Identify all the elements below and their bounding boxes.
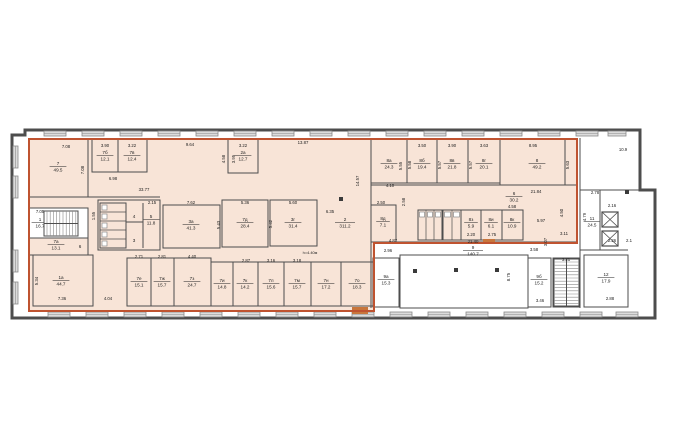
room-area: 19.4 — [418, 165, 427, 170]
wc-fixture — [102, 214, 107, 219]
column — [495, 268, 499, 272]
wc-fixture — [454, 212, 460, 217]
room-number: 7 — [57, 161, 60, 166]
dim-label: 5.36 — [241, 200, 250, 205]
room-area: 24.3 — [385, 165, 394, 170]
column — [413, 269, 417, 273]
dim-label: 5.43 — [216, 220, 221, 229]
dim-label: 2.58 — [401, 197, 406, 206]
dim-label: 4.04 — [104, 296, 113, 301]
dim-label: 2.96 — [384, 248, 393, 253]
dim-label: 6.98 — [109, 176, 118, 181]
room-area: 31.4 — [289, 224, 298, 229]
room-area: 15.7 — [158, 283, 167, 288]
dim-label: 7.62 — [187, 200, 196, 205]
dim-label: 5.55 — [398, 161, 403, 170]
room-area: 14.2 — [241, 285, 250, 290]
room-area: 15.1 — [135, 283, 144, 288]
dim-label: 1.55 — [91, 211, 96, 220]
room-number: 7м — [294, 278, 300, 283]
room-area: 311.2 — [339, 224, 351, 229]
room-number: 1а — [58, 275, 64, 280]
room-number: 7б — [102, 150, 108, 155]
room-number: 8б — [419, 158, 425, 163]
dim-label: 8.75 — [506, 272, 511, 281]
dim-label: 2.75 — [488, 232, 497, 237]
dim-label: 3.22 — [128, 143, 137, 148]
room-area: 14.8 — [218, 285, 227, 290]
dim-label: 2.15 — [148, 200, 157, 205]
room-number: 7в — [130, 150, 136, 155]
room-area: 15.3 — [382, 281, 391, 286]
dim-label: 4.58 — [221, 154, 226, 163]
room-number: 9а — [383, 274, 389, 279]
dim-label: 2.26 — [608, 238, 617, 243]
room-number: 7ж — [159, 276, 166, 281]
wc-fixture — [102, 241, 107, 246]
dim-label: 10.9 — [619, 147, 628, 152]
dim-label: 9.64 — [186, 142, 195, 147]
room-area: 11.8 — [147, 221, 156, 226]
room-number: 7о — [354, 278, 360, 283]
dim-label: 3.50 — [418, 143, 427, 148]
room-number: 7е — [136, 276, 142, 281]
dim-label: 21.40 — [468, 239, 479, 244]
room-note: h=4.40м — [303, 250, 318, 255]
dim-label: 21.84 — [531, 189, 542, 194]
dim-label: 3.95 — [231, 154, 236, 163]
wc-fixture — [420, 212, 425, 217]
dim-label: 3.11 — [560, 231, 569, 236]
room-number: 1 — [39, 217, 42, 222]
room-area: 6.1 — [488, 224, 495, 229]
dim-label: 7.05 — [36, 209, 45, 214]
dim-label: 2.87 — [242, 258, 251, 263]
room-note: 6 — [79, 244, 82, 249]
dim-label: 2.20 — [467, 232, 476, 237]
dim-label: 2.81 — [158, 254, 167, 259]
room-number: 7и — [219, 278, 225, 283]
room-area: 30.2 — [510, 198, 519, 203]
dim-label: 33.77 — [139, 187, 150, 192]
room-number: 9б — [536, 274, 542, 279]
room-number: 8и — [488, 217, 494, 222]
dim-label: 4.10 — [386, 183, 395, 188]
dim-label: 4.79 — [582, 212, 587, 221]
room-area: 17.2 — [322, 285, 331, 290]
wc-fixture — [436, 212, 441, 217]
dim-label: 8.95 — [529, 143, 538, 148]
dim-label: 5.34 — [34, 276, 39, 285]
room-area: 24.5 — [588, 223, 597, 228]
room-number: 7д — [242, 217, 248, 222]
room-area: 20.1 — [480, 165, 489, 170]
dim-label: 7.08 — [62, 144, 71, 149]
dim-label: 7.08 — [80, 165, 85, 174]
dim-label: 5.57 — [468, 160, 473, 169]
dim-label: 5.63 — [565, 160, 570, 169]
wc-fixture — [445, 212, 451, 217]
room-area: 12.1 — [101, 157, 110, 162]
room-area: 17.9 — [602, 279, 611, 284]
room-number: 2а — [240, 150, 246, 155]
dim-label: 3.07 — [543, 237, 548, 246]
dim-label: 2.88 — [606, 296, 615, 301]
dim-label: 2.16 — [608, 203, 617, 208]
room-number: 8з — [469, 217, 474, 222]
dim-label: 3.22 — [239, 143, 248, 148]
room-number: 8в — [450, 158, 456, 163]
wc-fixture — [102, 205, 107, 210]
dim-label: 4.58 — [508, 204, 517, 209]
dim-label: 5.42 — [268, 219, 273, 228]
room-area: 41.3 — [187, 226, 196, 231]
room-number: 7з — [190, 276, 195, 281]
room-area: 10.9 — [508, 224, 517, 229]
room-note: 4 — [133, 214, 136, 219]
dim-label: 14.57 — [355, 175, 360, 186]
column — [625, 190, 629, 194]
dim-label: 2.50 — [377, 200, 386, 205]
dim-label: 3.16 — [267, 258, 276, 263]
dim-label: 2.78 — [591, 190, 600, 195]
room-number: 12 — [603, 272, 609, 277]
dim-label: 5.57 — [437, 160, 442, 169]
room-area: 12.7 — [239, 157, 248, 162]
wc-fixture — [102, 232, 107, 237]
room-area: 15.7 — [293, 285, 302, 290]
dim-label: 2.1 — [626, 238, 633, 243]
room-area: 21.8 — [448, 165, 457, 170]
room-number: 8г — [482, 158, 487, 163]
room-number: 7а — [53, 239, 59, 244]
dim-label: 4.87 — [389, 238, 398, 243]
room-area: 28.4 — [241, 224, 250, 229]
dim-label: 6.35 — [326, 209, 335, 214]
wc-fixture — [428, 212, 433, 217]
dim-label: 4.50 — [559, 208, 564, 217]
room-number: 6 — [513, 191, 516, 196]
room-number: 3а — [188, 219, 194, 224]
dim-label: 5.58 — [407, 160, 412, 169]
floor-plan: 749.57б12.17в12.42а12.7511.83а41.37д28.4… — [0, 0, 681, 444]
room-number: 9 — [472, 245, 475, 250]
room-area: 49.2 — [533, 165, 542, 170]
room-area: 15.6 — [267, 285, 276, 290]
room-number: 7н — [323, 278, 329, 283]
dim-label: 13.87 — [298, 140, 309, 145]
room-number: 8д — [380, 216, 386, 221]
dim-label: 5.60 — [289, 200, 298, 205]
dim-label: 3.90 — [448, 143, 457, 148]
room-area: 18.3 — [353, 285, 362, 290]
dim-label: 3.63 — [480, 143, 489, 148]
room-number: 11 — [590, 216, 595, 221]
dim-label: 5.97 — [537, 218, 546, 223]
room-area: 12.4 — [128, 157, 137, 162]
room-area: 44.7 — [57, 282, 66, 287]
dim-label: 3.46 — [536, 298, 545, 303]
room-area: 7.1 — [380, 223, 387, 228]
room-area: 49.5 — [54, 168, 63, 173]
dim-label: 3.21 — [562, 257, 571, 262]
room-area: 24.7 — [188, 283, 197, 288]
room-number: 5 — [150, 214, 153, 219]
room-area: 13.1 — [52, 246, 61, 251]
dim-label: 3.18 — [293, 258, 302, 263]
room-number: 8 — [536, 158, 539, 163]
room-number: 3г — [291, 217, 296, 222]
wc-fixture — [102, 223, 107, 228]
room-area: 140.7 — [467, 252, 479, 257]
room-area: 15.2 — [535, 281, 544, 286]
room-area: 5.9 — [468, 224, 475, 229]
dim-label: 2.71 — [135, 254, 144, 259]
room-note: 3 — [133, 238, 136, 243]
dim-label: 3.90 — [101, 143, 110, 148]
column — [454, 268, 458, 272]
floor-plan-canvas: 749.57б12.17в12.42а12.7511.83а41.37д28.4… — [0, 0, 681, 444]
dim-label: 7.36 — [58, 296, 67, 301]
dim-label: 4.40 — [188, 254, 197, 259]
dim-label: 3.58 — [530, 247, 539, 252]
room-number: 8а — [386, 158, 392, 163]
column — [339, 197, 343, 201]
room-number: 7л — [268, 278, 274, 283]
room-number: 2 — [344, 217, 347, 222]
